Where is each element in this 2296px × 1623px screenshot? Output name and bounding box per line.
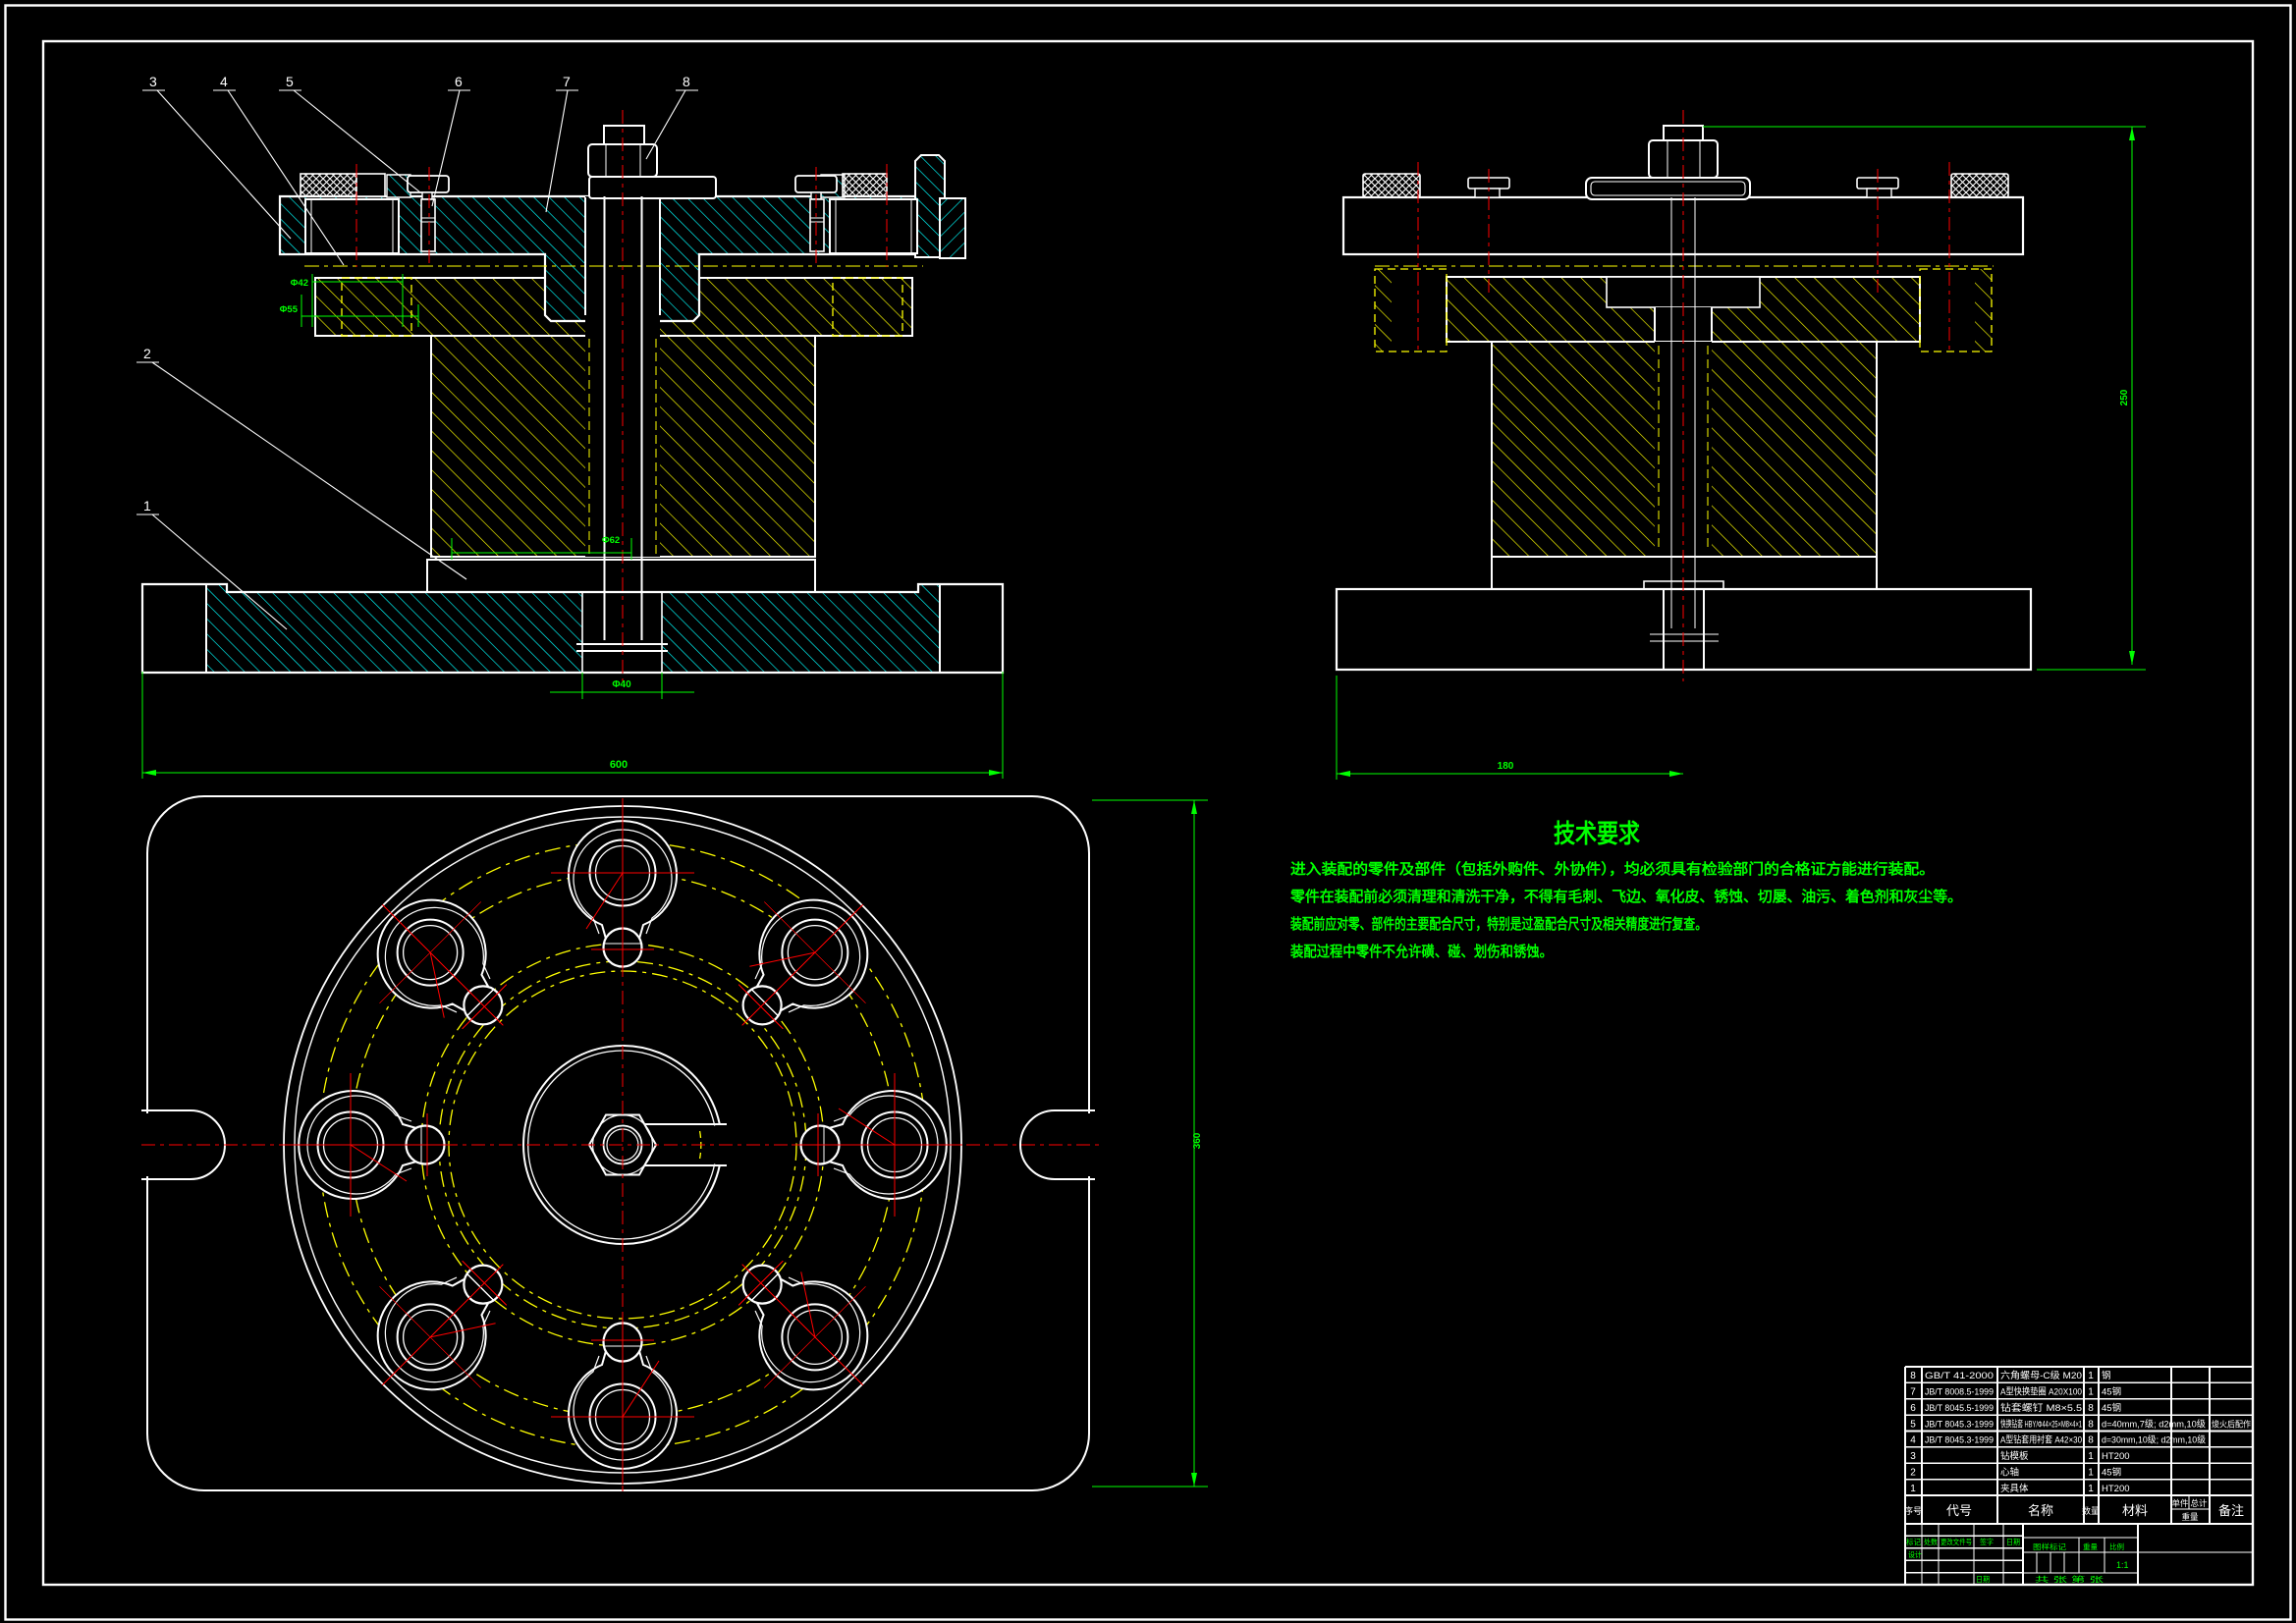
svg-text:3: 3 — [1910, 1451, 1916, 1462]
svg-text:设计: 设计 — [1908, 1549, 1922, 1559]
svg-text:日期: 日期 — [2006, 1538, 2020, 1546]
svg-text:数量: 数量 — [2082, 1505, 2100, 1516]
svg-text:重量: 重量 — [2181, 1512, 2199, 1522]
svg-text:4: 4 — [1910, 1435, 1916, 1446]
svg-text:45钢: 45钢 — [2102, 1466, 2121, 1478]
svg-text:装配过程中零件不允许磺、碰、划伤和锈蚀。: 装配过程中零件不允许磺、碰、划伤和锈蚀。 — [1289, 943, 1553, 960]
svg-text:GB/T 41-2000: GB/T 41-2000 — [1925, 1371, 1994, 1381]
svg-text:序号: 序号 — [1904, 1505, 1922, 1516]
svg-text:进入装配的零件及部件（包括外购件、外协件），均必须具有检验部: 进入装配的零件及部件（包括外购件、外协件），均必须具有检验部门的合格证方能进行装… — [1290, 860, 1935, 878]
svg-text:3: 3 — [149, 74, 157, 89]
svg-text:焌火后配作: 焌火后配作 — [2212, 1419, 2251, 1429]
svg-text:重量: 重量 — [2083, 1542, 2099, 1551]
svg-text:钻模板: 钻模板 — [2000, 1450, 2029, 1462]
svg-text:处数: 处数 — [1924, 1537, 1938, 1546]
svg-text:1:1: 1:1 — [2116, 1560, 2129, 1570]
svg-text:JB/T 8045.3-1999: JB/T 8045.3-1999 — [1925, 1419, 1994, 1430]
svg-text:600: 600 — [610, 759, 628, 771]
svg-text:8: 8 — [2088, 1419, 2094, 1430]
svg-text:JB/T 8045.3-1999: JB/T 8045.3-1999 — [1925, 1435, 1994, 1446]
svg-text:1: 1 — [2088, 1467, 2094, 1478]
svg-text:A型快换垫圈 A20X100: A型快换垫圈 A20X100 — [2000, 1386, 2082, 1398]
svg-text:夹具体: 夹具体 — [2000, 1483, 2029, 1494]
svg-text:六角螺母-C级 M20: 六角螺母-C级 M20 — [2000, 1370, 2082, 1381]
svg-text:d=30mm,10级; d2mm,10级: d=30mm,10级; d2mm,10级 — [2102, 1434, 2206, 1446]
svg-text:5: 5 — [1910, 1419, 1916, 1430]
svg-text:A型钻套用衬套 A42×30: A型钻套用衬套 A42×30 — [2000, 1434, 2082, 1446]
svg-text:1: 1 — [2088, 1484, 2094, 1494]
svg-text:名称: 名称 — [2028, 1503, 2053, 1518]
svg-text:图样标记: 图样标记 — [2033, 1542, 2067, 1551]
svg-text:Φ42: Φ42 — [291, 278, 308, 289]
svg-text:装配前应对零、部件的主要配合尺寸，特别是过盈配合尺寸及相关精: 装配前应对零、部件的主要配合尺寸，特别是过盈配合尺寸及相关精度进行复查。 — [1289, 915, 1707, 933]
svg-text:JB/T 8045.5-1999: JB/T 8045.5-1999 — [1925, 1403, 1994, 1414]
svg-text:钻套螺钉 M8×5.5: 钻套螺钉 M8×5.5 — [2000, 1402, 2082, 1414]
svg-text:d=40mm,7级; d2mm,10级: d=40mm,7级; d2mm,10级 — [2102, 1418, 2206, 1430]
svg-text:材料: 材料 — [2122, 1503, 2148, 1518]
svg-text:1: 1 — [2088, 1387, 2094, 1398]
svg-text:备注: 备注 — [2218, 1503, 2244, 1518]
svg-text:8: 8 — [2088, 1435, 2094, 1446]
svg-text:钢: 钢 — [2102, 1370, 2111, 1381]
svg-text:7: 7 — [1910, 1387, 1916, 1398]
svg-text:7: 7 — [563, 74, 571, 89]
svg-text:8: 8 — [2088, 1403, 2094, 1414]
svg-text:Φ55: Φ55 — [280, 304, 299, 315]
svg-text:代号: 代号 — [1946, 1503, 1972, 1518]
svg-text:零件在装配前必须清理和清洗干净，不得有毛刺、飞边、氧化皮、锈: 零件在装配前必须清理和清洗干净，不得有毛刺、飞边、氧化皮、锈蚀、切屡、油污、着色… — [1289, 888, 1962, 905]
svg-text:8: 8 — [1910, 1371, 1916, 1381]
svg-text:HT200: HT200 — [2102, 1484, 2130, 1494]
svg-text:6: 6 — [455, 74, 463, 89]
svg-text:签字: 签字 — [1980, 1537, 1994, 1546]
svg-text:45钢: 45钢 — [2102, 1402, 2121, 1414]
svg-text:180: 180 — [1498, 761, 1514, 772]
svg-text:总计: 总计 — [2190, 1498, 2208, 1508]
svg-text:技术要求: 技术要求 — [1554, 819, 1640, 848]
svg-text:心轴: 心轴 — [2000, 1466, 2019, 1478]
svg-text:Φ40: Φ40 — [612, 679, 631, 690]
svg-text:快换钻套 HBY/Φ44×25×M8×4×1: 快换钻套 HBY/Φ44×25×M8×4×1 — [2000, 1418, 2082, 1430]
svg-text:1: 1 — [143, 498, 151, 514]
svg-text:4: 4 — [220, 74, 228, 89]
svg-text:1: 1 — [2088, 1371, 2094, 1381]
svg-text:45钢: 45钢 — [2102, 1386, 2121, 1398]
svg-text:250: 250 — [2119, 389, 2130, 406]
svg-text:2: 2 — [143, 346, 151, 361]
svg-text:共 张 第 张: 共 张 第 张 — [2035, 1574, 2105, 1584]
svg-text:更改文件号: 更改文件号 — [1941, 1537, 1972, 1546]
svg-text:日期: 日期 — [1976, 1575, 1990, 1584]
svg-text:360: 360 — [1192, 1132, 1203, 1149]
svg-text:2: 2 — [1910, 1467, 1916, 1478]
svg-text:6: 6 — [1910, 1403, 1916, 1414]
svg-text:5: 5 — [286, 74, 294, 89]
svg-text:比例: 比例 — [2109, 1542, 2124, 1551]
svg-text:单件: 单件 — [2171, 1498, 2189, 1508]
svg-text:标记: 标记 — [1906, 1537, 1922, 1546]
svg-text:1: 1 — [2088, 1451, 2094, 1462]
svg-text:HT200: HT200 — [2102, 1451, 2130, 1462]
svg-text:1: 1 — [1910, 1484, 1916, 1494]
svg-text:8: 8 — [683, 74, 690, 89]
svg-text:Φ62: Φ62 — [602, 535, 620, 546]
svg-text:JB/T 8008.5-1999: JB/T 8008.5-1999 — [1925, 1387, 1994, 1398]
